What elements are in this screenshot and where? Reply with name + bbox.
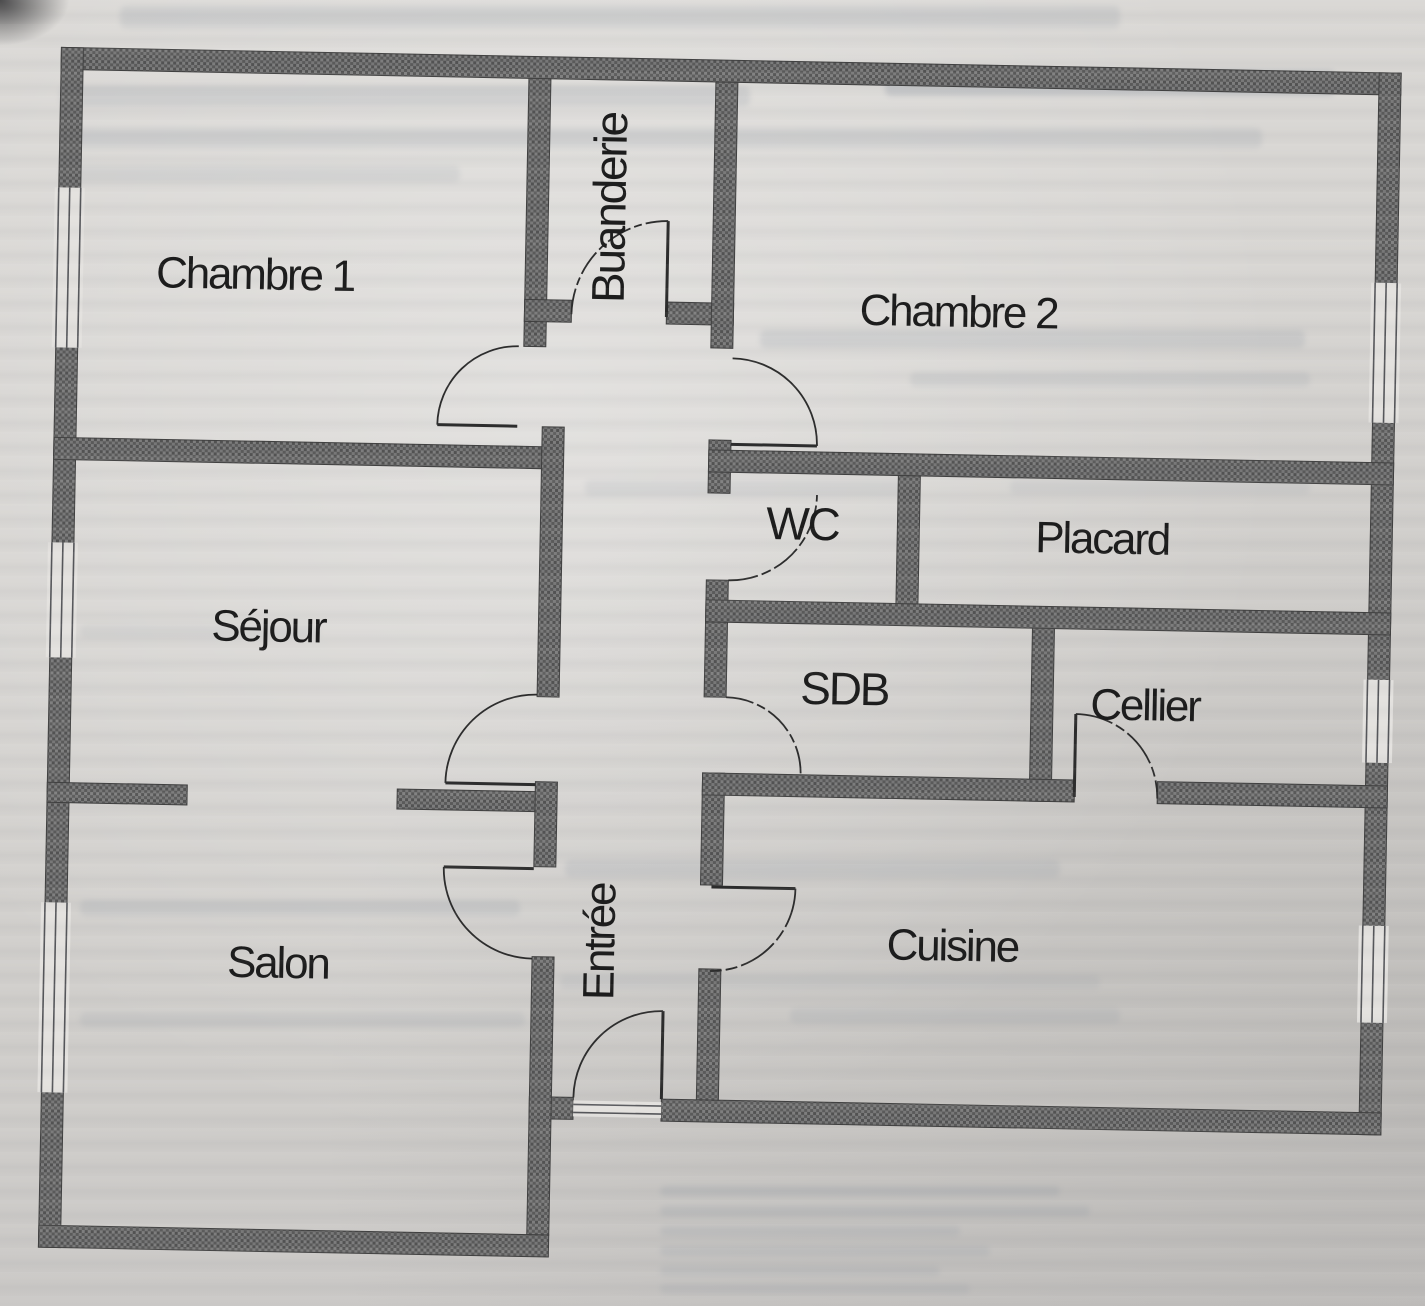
wall-hall-right-upper	[711, 82, 738, 348]
room-label-sejour: Séjour	[211, 601, 327, 652]
wall-sejour-salon-stub-left	[47, 782, 187, 805]
door-sejour	[445, 693, 537, 785]
window-chambre1	[52, 187, 85, 348]
wall-chambre2-bottom-divider	[708, 450, 1393, 485]
walls	[38, 47, 1401, 1273]
room-label-entree: Entrée	[574, 882, 625, 1000]
door-salon	[442, 867, 534, 959]
floor-plan-drawing: Chambre 1 Buanderie Chambre 2 WC Placard…	[0, 0, 1425, 1306]
wall-cuisine-top-right-seg	[1157, 782, 1387, 808]
room-label-placard: Placard	[1035, 513, 1170, 565]
room-label-chambre-1: Chambre 1	[156, 248, 355, 301]
door-chambre2	[731, 358, 819, 446]
wall-cuisine-top-left-seg	[702, 773, 1074, 802]
room-label-cuisine: Cuisine	[886, 920, 1019, 972]
wall-hall-right-seg3	[704, 580, 728, 697]
room-label-salon: Salon	[227, 938, 329, 989]
room-label-buanderie: Buanderie	[582, 112, 638, 303]
room-labels: Chambre 1 Buanderie Chambre 2 WC Placard…	[142, 104, 1212, 1012]
wall-hall-right-seg5	[696, 969, 721, 1100]
room-label-cellier: Cellier	[1090, 680, 1202, 731]
wall-cuisine-bottom	[661, 1099, 1381, 1135]
door-main-entrance	[573, 1009, 663, 1099]
main-entrance-sill	[573, 1100, 661, 1118]
wall-wc-placard-divider	[896, 476, 920, 604]
window-cuisine	[1357, 925, 1389, 1023]
wall-hall-left-mid	[534, 782, 558, 867]
wall-sdb-cellier-divider	[1029, 628, 1054, 801]
wall-salon-bottom	[38, 1225, 548, 1257]
wall-hall-left-upper	[537, 427, 564, 697]
window-chambre2	[1368, 283, 1401, 424]
window-sejour	[46, 542, 78, 658]
window-salon	[37, 902, 71, 1093]
door-chambre1	[437, 345, 519, 427]
wall-sejour-salon-stub-right	[397, 789, 535, 812]
wall-hall-left-lower	[527, 957, 554, 1235]
wall-buanderie-bottom-left-stub	[524, 299, 571, 322]
room-label-chambre-2: Chambre 2	[859, 286, 1058, 339]
room-label-sdb: SDB	[800, 662, 889, 716]
door-cuisine	[710, 887, 796, 973]
wall-chambre1-sejour-divider	[54, 437, 542, 468]
window-cellier	[1362, 680, 1394, 764]
scanned-floor-plan-page: Chambre 1 Buanderie Chambre 2 WC Placard…	[0, 0, 1425, 1306]
room-label-wc: WC	[766, 497, 840, 550]
door-sdb	[725, 697, 802, 774]
